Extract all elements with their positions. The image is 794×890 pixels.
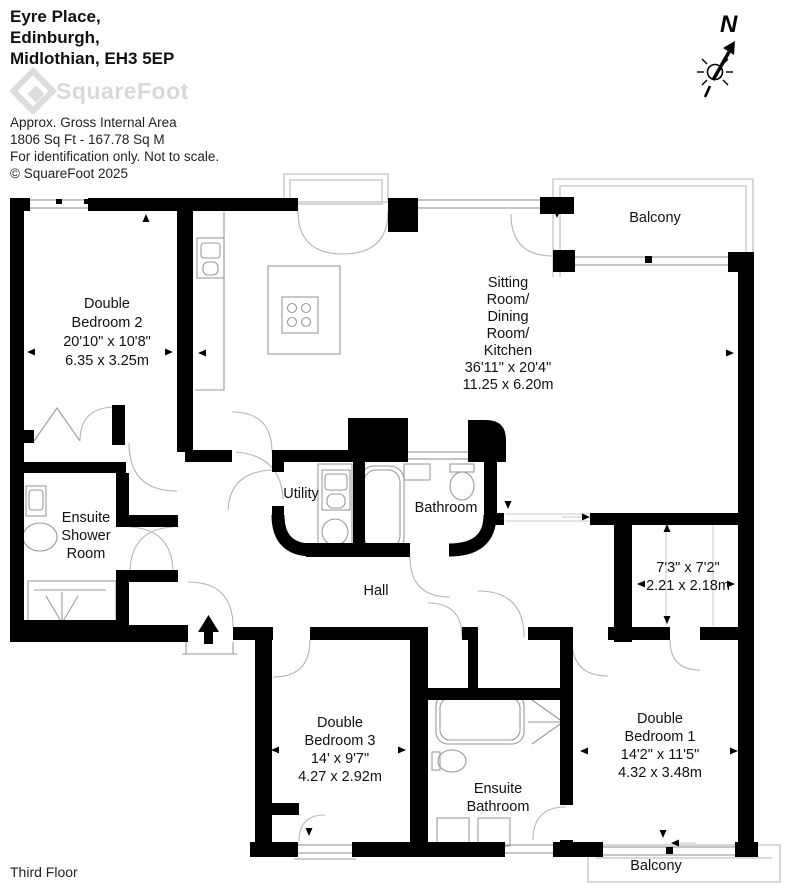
shower-vestibule-door-2 [130, 527, 173, 570]
room-label-balcony-top: Balcony [629, 209, 681, 227]
room-label-bedroom3: Double Bedroom 3 14' x 9'7" 4.27 x 2.92m [298, 714, 382, 786]
room-name: Balcony [630, 857, 682, 875]
room-dims-imperial: 14'2" x 11'5" [618, 746, 702, 764]
french-door-left [298, 211, 343, 254]
room-dims-imperial: 20'10" x 10'8" [63, 333, 151, 352]
squarefoot-logo: SquareFoot [8, 70, 258, 114]
room-name: Hall [364, 582, 389, 600]
room-name: Dining [463, 309, 554, 326]
bedroom2-door-arc [129, 443, 177, 491]
ensuite-bathtub [436, 694, 524, 744]
room-dims-metric: 4.32 x 3.48m [618, 764, 702, 782]
ensuite-shower-spray [528, 700, 563, 744]
bathroom-door-arc [410, 557, 450, 597]
room-label-balcony-bottom: Balcony [630, 857, 682, 875]
room-name: Double [63, 295, 151, 314]
room-name: Room/ [463, 326, 554, 343]
info-line: © SquareFoot 2025 [10, 165, 219, 182]
room-label-bedroom2: Double Bedroom 2 20'10" x 10'8" 6.35 x 3… [63, 295, 151, 371]
bedroom1-door-arc [572, 640, 608, 676]
room-name: Ensuite [467, 780, 530, 798]
info-line: Approx. Gross Internal Area [10, 114, 219, 131]
room-dims-metric: 2.21 x 2.18m [646, 577, 730, 595]
shower-room-toilet [23, 523, 57, 551]
room-label-store: 7'3" x 7'2" 2.21 x 2.18m [646, 559, 730, 595]
room-name: Kitchen [463, 343, 554, 360]
ensuite-sink-2 [478, 818, 510, 846]
room-name: Bathroom [415, 499, 478, 517]
closet-bifold [34, 408, 80, 441]
shower-tray [28, 581, 116, 625]
washing-machine [322, 519, 348, 545]
store-door-arc [670, 640, 700, 670]
toilet-cistern [450, 464, 474, 472]
address-line: Midlothian, EH3 5EP [10, 48, 174, 69]
bathroom-sink [404, 464, 430, 480]
balcony-top-inner [560, 186, 746, 277]
info-line: 1806 Sq Ft - 167.78 Sq M [10, 131, 219, 148]
kitchen-island [268, 266, 340, 354]
room-name: Double [618, 710, 702, 728]
room-label-hall: Hall [364, 582, 389, 600]
address-line: Edinburgh, [10, 27, 174, 48]
utility-door-arc [228, 470, 272, 510]
room-label-utility: Utility [283, 485, 318, 503]
entrance-arrow [198, 615, 219, 644]
kitchen-corridor-door [232, 412, 272, 452]
kitchen-counter [195, 212, 224, 390]
room-name: Bedroom 1 [618, 728, 702, 746]
ensuite-toilet-cistern [432, 752, 440, 770]
room-name: Bathroom [467, 798, 530, 816]
room-name: Shower [61, 527, 110, 545]
compass-icon: N [697, 11, 738, 97]
room-name: Utility [283, 485, 318, 503]
property-address: Eyre Place, Edinburgh, Midlothian, EH3 5… [10, 6, 174, 69]
kitchen-window [418, 200, 540, 208]
room-dims-metric: 11.25 x 6.20m [463, 377, 554, 394]
ensuite-toilet [438, 750, 466, 772]
ensuite-bathroom-window [505, 845, 553, 853]
balcony-door-arc [511, 214, 553, 256]
area-info: Approx. Gross Internal Area 1806 Sq Ft -… [10, 114, 219, 182]
room-name: Room/ [463, 292, 554, 309]
bathtub [360, 466, 404, 552]
room-name: Ensuite [61, 509, 110, 527]
room-name: Balcony [629, 209, 681, 227]
bedroom3-door-arc [273, 640, 310, 677]
shower-spray [46, 592, 78, 623]
lobby-door-2 [478, 591, 524, 637]
french-door-right [343, 211, 388, 254]
compass-north-label: N [720, 11, 738, 38]
room-name: Bedroom 2 [63, 314, 151, 333]
shower-vestibule-door-1 [130, 527, 173, 570]
room-label-ensuite-bathroom: Ensuite Bathroom [467, 780, 530, 816]
room-dims-imperial: 7'3" x 7'2" [646, 559, 730, 577]
room-name: Sitting [463, 275, 554, 292]
door-recess-outer [284, 174, 388, 202]
lobby-door-1 [428, 603, 462, 637]
room-dims-metric: 6.35 x 3.25m [63, 352, 151, 371]
room-dims-imperial: 14' x 9'7" [298, 750, 382, 768]
door-recess-inner [290, 180, 382, 204]
squarefoot-logo-text: SquareFoot [56, 78, 189, 105]
room-name: Double [298, 714, 382, 732]
ensuite-bathroom-door-arc [533, 807, 566, 840]
room-dims-metric: 4.27 x 2.92m [298, 768, 382, 786]
bedroom3-window [298, 845, 352, 853]
info-line: For identification only. Not to scale. [10, 148, 219, 165]
closet-door-arc [80, 407, 116, 441]
room-label-ensuite-shower: Ensuite Shower Room [61, 509, 110, 563]
hob [282, 297, 318, 333]
room-name: Bedroom 3 [298, 732, 382, 750]
ensuite-sink-1 [437, 818, 469, 846]
floor-label: Third Floor [10, 864, 78, 880]
floorplan-page: N Eyre Place, Edinburgh, Midlothian, EH3… [0, 0, 794, 890]
room-name: Room [61, 545, 110, 563]
room-label-sitting: Sitting Room/ Dining Room/ Kitchen 36'11… [463, 275, 554, 394]
room-label-bathroom: Bathroom [415, 499, 478, 517]
balcony-top-outer [553, 179, 753, 277]
toilet [450, 472, 474, 500]
bathroom-hatch-window [408, 452, 468, 459]
room-label-bedroom1: Double Bedroom 1 14'2" x 11'5" 4.32 x 3.… [618, 710, 702, 782]
address-line: Eyre Place, [10, 6, 174, 27]
room-dims-imperial: 36'11" x 20'4" [463, 360, 554, 377]
